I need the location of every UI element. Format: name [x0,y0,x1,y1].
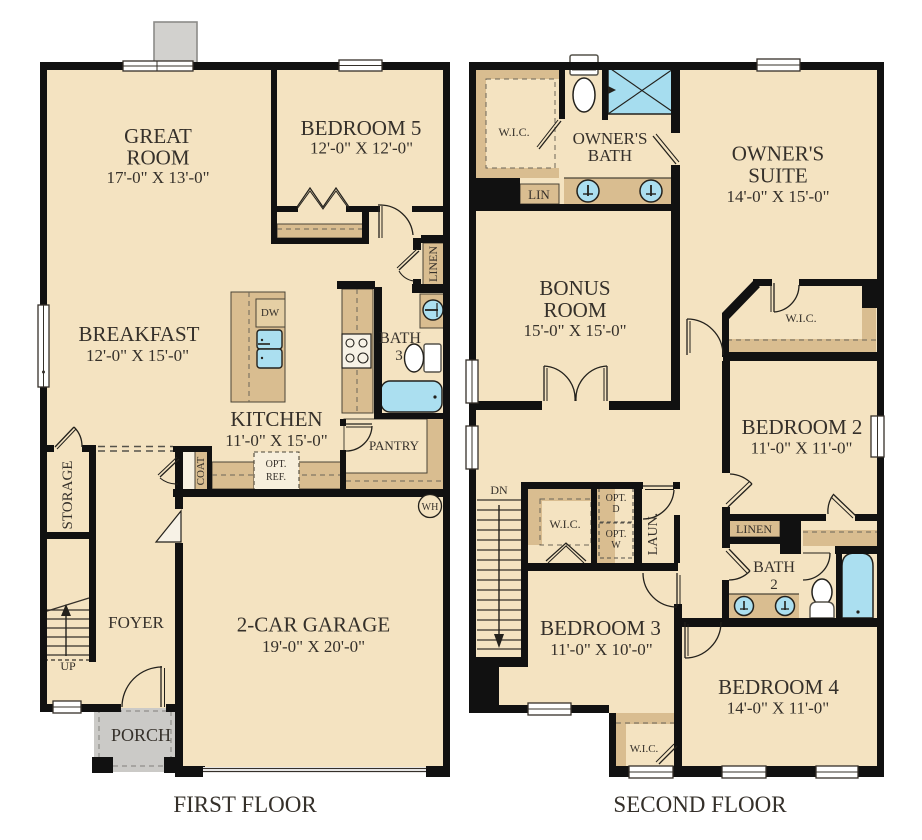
svg-text:LINEN: LINEN [426,246,440,282]
svg-text:3: 3 [395,348,403,364]
svg-text:W.I.C.: W.I.C. [630,743,659,755]
svg-text:ROOM: ROOM [126,146,189,170]
svg-text:W.I.C.: W.I.C. [498,125,529,139]
svg-text:BEDROOM 2: BEDROOM 2 [742,415,863,439]
svg-text:ROOM: ROOM [543,298,606,322]
svg-text:LAUN.: LAUN. [646,513,661,555]
svg-text:BATH: BATH [753,559,795,576]
svg-text:LINEN: LINEN [736,522,772,536]
svg-text:FOYER: FOYER [108,613,164,632]
svg-text:PANTRY: PANTRY [369,438,420,453]
svg-text:BATH: BATH [379,330,421,347]
svg-text:12'-0" X 15'-0": 12'-0" X 15'-0" [86,346,189,365]
svg-text:OPT.: OPT. [606,493,627,504]
svg-text:BONUS: BONUS [539,276,610,300]
svg-text:2-CAR GARAGE: 2-CAR GARAGE [237,613,390,637]
svg-text:BEDROOM 4: BEDROOM 4 [718,675,839,699]
svg-text:SUITE: SUITE [748,164,808,188]
svg-text:OWNER'S: OWNER'S [732,142,824,166]
svg-text:BATH: BATH [588,146,632,165]
svg-text:2: 2 [770,577,778,593]
svg-text:W.I.C.: W.I.C. [785,311,816,325]
svg-text:14'-0" X 15'-0": 14'-0" X 15'-0" [726,187,829,206]
svg-text:12'-0" X 12'-0": 12'-0" X 12'-0" [310,139,413,158]
svg-text:COAT: COAT [195,456,207,485]
svg-text:STORAGE: STORAGE [60,461,76,530]
svg-text:UP: UP [60,659,76,673]
svg-text:DN: DN [490,483,508,497]
svg-text:WH: WH [422,502,439,513]
svg-text:W.I.C.: W.I.C. [549,517,580,531]
svg-text:DW: DW [261,307,280,319]
svg-text:19'-0" X 20'-0": 19'-0" X 20'-0" [262,637,365,656]
svg-text:W: W [611,540,621,551]
svg-text:17'-0" X 13'-0": 17'-0" X 13'-0" [106,168,209,187]
svg-text:GREAT: GREAT [124,124,192,148]
svg-text:11'-0" X 15'-0": 11'-0" X 15'-0" [225,431,327,450]
svg-text:BEDROOM 3: BEDROOM 3 [540,616,661,640]
svg-text:15'-0" X 15'-0": 15'-0" X 15'-0" [523,321,626,340]
svg-text:REF.: REF. [266,472,286,483]
svg-text:14'-0" X 11'-0": 14'-0" X 11'-0" [727,699,829,718]
svg-text:SECOND FLOOR: SECOND FLOOR [613,792,787,817]
svg-text:11'-0" X 11'-0": 11'-0" X 11'-0" [751,439,853,458]
svg-text:LIN: LIN [528,187,550,202]
svg-text:11'-0" X 10'-0": 11'-0" X 10'-0" [550,640,652,659]
svg-text:FIRST FLOOR: FIRST FLOOR [173,792,317,817]
svg-text:OPT.: OPT. [606,529,627,540]
svg-text:OPT.: OPT. [266,459,287,470]
svg-text:BREAKFAST: BREAKFAST [79,322,200,346]
svg-text:D: D [612,504,619,515]
svg-text:BEDROOM 5: BEDROOM 5 [301,116,422,140]
svg-text:KITCHEN: KITCHEN [230,407,322,431]
svg-text:PORCH: PORCH [111,725,171,745]
